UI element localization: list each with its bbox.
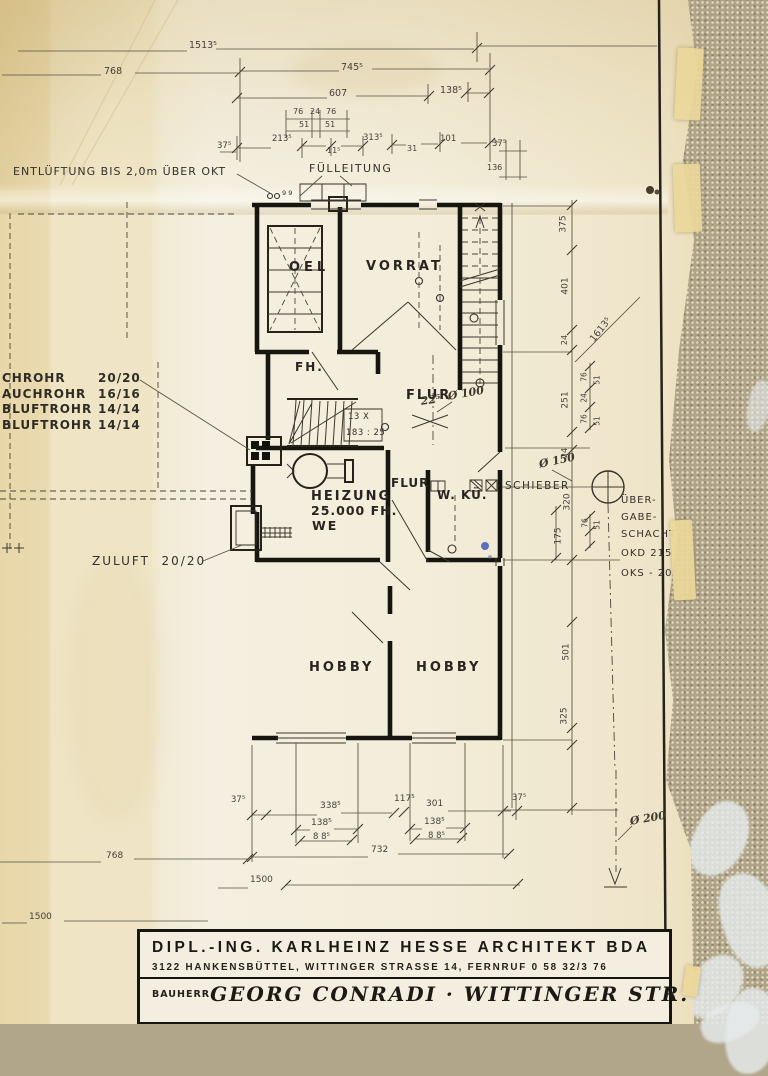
dim-top-768: 768	[104, 67, 122, 77]
room-label-fh: FH.	[295, 361, 324, 373]
pipe-row-value-2: 14/14	[98, 402, 141, 416]
dim-bot-1500b: 1500	[29, 913, 52, 922]
dim-top-37a: 37⁵	[217, 142, 231, 151]
dim-right-51a: 51	[593, 375, 601, 385]
client-label: BAUHERR	[140, 989, 210, 1000]
pipe-row-label-2: BLUFTROHR	[2, 402, 92, 416]
dim-top-1513: 1513⁵	[189, 41, 217, 51]
room-label-flur-lower: FLUR	[391, 477, 429, 489]
dim-bot-768: 768	[106, 852, 123, 861]
dim-right-76c: 76	[581, 518, 589, 528]
hand-dia-150: Ø 150	[538, 451, 576, 469]
dim-right-401: 401	[562, 277, 571, 294]
dim-bot-732: 732	[371, 846, 388, 855]
pipe-row-value-0: 20/20	[98, 371, 141, 385]
dim-top-24: 24	[310, 108, 320, 116]
dim-top-745: 745⁵	[341, 63, 363, 73]
dim-top-51b: 51	[325, 121, 335, 129]
room-label-heizung-capacity: 25.000 FH.	[311, 505, 397, 518]
dim-top-313: 313⁵	[363, 134, 383, 143]
hand-dia-100: Ø 100	[447, 385, 485, 402]
dim-bot-138b: 138⁵	[424, 818, 445, 827]
note-stair-steps: 13 X	[348, 413, 369, 422]
dim-bot-37b: 37⁵	[512, 794, 526, 803]
dim-top-76a: 76	[293, 108, 303, 116]
room-label-heizung: HEIZUNG	[311, 490, 391, 503]
room-label-wkue: W. KÜ.	[437, 489, 487, 501]
note-oks: OKS - 20	[621, 569, 672, 579]
drawing-sheet: 1513⁵768745⁵607138⁵762476515137⁵213⁵11⁵3…	[0, 0, 768, 1024]
dim-bot-37a: 37⁵	[231, 796, 245, 805]
note-okd: OKD 215	[621, 549, 672, 559]
title-block: DIPL.-ING. KARLHEINZ HESSE ARCHITEKT BDA…	[137, 929, 672, 1025]
note-uebergabe-2: GABE-	[621, 513, 657, 523]
dim-bot-1500a: 1500	[250, 876, 273, 885]
dim-top-138: 138⁵	[440, 86, 462, 96]
dim-right-501: 501	[563, 643, 572, 660]
dim-top-51a: 51	[299, 121, 309, 129]
dim-bot-88a: 8 8⁵	[313, 833, 330, 842]
annotation-layer: 1513⁵768745⁵607138⁵762476515137⁵213⁵11⁵3…	[0, 0, 768, 1024]
note-stair-ratio: 183 : 25	[346, 429, 385, 438]
note-uebergabe-1: ÜBER-	[621, 496, 657, 506]
pipe-row-label-0: CHROHR	[2, 371, 66, 385]
note-uebergabe-3: SCHACHT	[621, 530, 676, 540]
hand-dia-200: Ø 200	[629, 810, 667, 827]
dim-top-136: 136	[487, 164, 502, 172]
dim-right-51c: 51	[593, 520, 601, 530]
dim-top-37b: 37⁵	[492, 140, 506, 149]
tape-piece	[670, 519, 696, 600]
room-label-hobby-right: HOBBY	[416, 661, 481, 674]
dim-bot-117: 117⁵	[394, 795, 415, 804]
pipe-row-label-1: AUCHROHR	[2, 387, 86, 401]
pipe-row-value-1: 16/16	[98, 387, 141, 401]
dim-top-213: 213⁵	[272, 135, 292, 144]
client-row: BAUHERR GEORG CONRADI · WITTINGER STR. 3…	[140, 977, 669, 1009]
dim-right-1613: 1613⁵	[589, 316, 614, 344]
note-zuluft: ZULUFT 20/20	[92, 555, 206, 567]
architect-name: DIPL.-ING. KARLHEINZ HESSE ARCHITEKT BDA	[140, 932, 669, 957]
hand-dim-22-5: 22⁵	[420, 393, 441, 407]
dim-right-76b: 76	[580, 414, 588, 424]
dim-bot-88b: 8 8⁵	[428, 832, 445, 841]
room-label-heizung-we: WE	[312, 520, 338, 533]
tape-piece	[673, 164, 702, 233]
dim-right-175: 175	[555, 527, 564, 544]
dim-right-51b: 51	[593, 416, 601, 426]
dim-top-31: 31	[407, 145, 417, 153]
dim-right-320: 320	[564, 493, 573, 510]
dim-top-607: 607	[329, 89, 347, 99]
dim-bot-301: 301	[426, 800, 443, 809]
dim-right-24b: 24	[580, 393, 588, 403]
dim-top-101: 101	[440, 135, 456, 144]
dim-right-325: 325	[561, 707, 570, 724]
note-fuelleitung: FÜLLEITUNG	[309, 163, 392, 174]
dim-right-24a: 24	[561, 335, 569, 345]
note-entlueftung: ENTLÜFTUNG BIS 2,0m ÜBER OKT	[13, 166, 226, 177]
dim-top-76b: 76	[326, 108, 336, 116]
dim-right-251: 251	[562, 391, 571, 408]
dim-bot-338: 338⁵	[320, 802, 341, 811]
client-name: GEORG CONRADI · WITTINGER STR. 34	[210, 982, 730, 1006]
note-vent-pipes: 9 9	[282, 190, 292, 197]
tape-piece	[674, 47, 704, 120]
room-label-hobby-left: HOBBY	[309, 661, 374, 674]
dim-top-11: 11⁵	[327, 147, 340, 155]
pipe-row-value-3: 14/14	[98, 418, 141, 432]
note-schieber: SCHIEBER	[505, 481, 570, 492]
dim-right-76a: 76	[580, 372, 588, 382]
room-label-vorrat: VORRAT	[366, 260, 443, 273]
dim-bot-138a: 138⁵	[311, 819, 332, 828]
architect-address: 3122 HANKENSBÜTTEL, WITTINGER STRASSE 14…	[140, 957, 669, 977]
pipe-row-label-3: BLUFTROHR	[2, 418, 92, 432]
room-label-oel: OEL	[289, 261, 329, 274]
dim-right-375: 375	[560, 215, 569, 232]
